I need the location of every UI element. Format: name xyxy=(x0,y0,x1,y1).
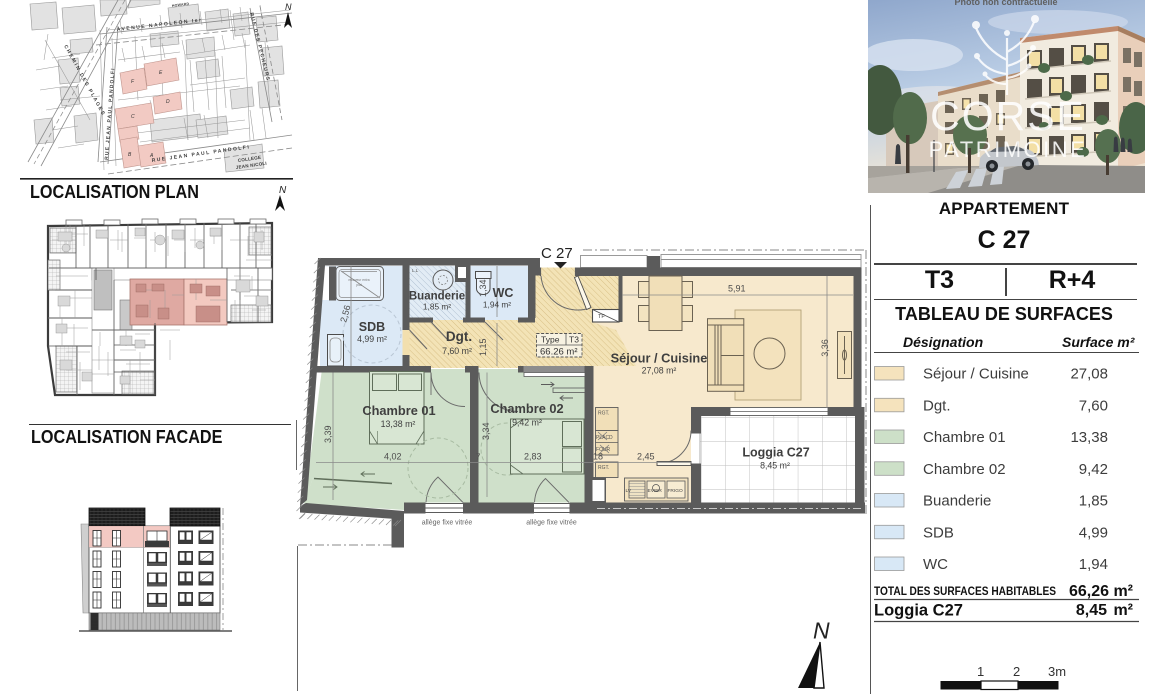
svg-text:TOTAL DES SURFACES HABITABLES: TOTAL DES SURFACES HABITABLES xyxy=(874,586,1056,598)
svg-text:SDB: SDB xyxy=(923,524,954,541)
svg-text:9,42: 9,42 xyxy=(1079,461,1108,478)
svg-text:66.26 m²: 66.26 m² xyxy=(540,347,578,358)
svg-text:4,02: 4,02 xyxy=(384,452,402,462)
svg-text:66,26 m²: 66,26 m² xyxy=(1069,583,1133,600)
svg-text:Dgt.: Dgt. xyxy=(923,397,951,414)
svg-text:WC: WC xyxy=(493,286,514,300)
svg-text:18: 18 xyxy=(593,452,603,462)
svg-text:3,39: 3,39 xyxy=(323,425,333,443)
svg-text:1,94 m²: 1,94 m² xyxy=(483,300,511,310)
svg-text:1,34: 1,34 xyxy=(478,279,488,297)
svg-text:13,38: 13,38 xyxy=(1070,429,1108,446)
svg-text:8,45 m²: 8,45 m² xyxy=(1076,602,1133,619)
svg-text:CORSE: CORSE xyxy=(930,93,1086,139)
svg-text:RGT.: RGT. xyxy=(598,465,609,471)
svg-text:receveur extra: receveur extra xyxy=(348,278,369,282)
svg-text:WC: WC xyxy=(923,556,948,573)
svg-text:Type: Type xyxy=(541,335,560,345)
svg-text:L.L: L.L xyxy=(412,268,419,273)
svg-text:SDB: SDB xyxy=(359,320,385,334)
svg-text:Photo non contractuelle: Photo non contractuelle xyxy=(954,0,1057,7)
svg-text:N: N xyxy=(285,2,292,12)
svg-text:9,42 m²: 9,42 m² xyxy=(512,418,542,428)
svg-text:N: N xyxy=(279,185,287,196)
svg-text:2,45: 2,45 xyxy=(637,452,655,462)
svg-text:3,34: 3,34 xyxy=(481,422,491,440)
svg-text:27,08: 27,08 xyxy=(1070,366,1108,383)
svg-text:1,15: 1,15 xyxy=(478,338,488,356)
svg-text:Chambre 01: Chambre 01 xyxy=(362,403,435,418)
svg-text:D: D xyxy=(166,99,170,105)
svg-text:7: 7 xyxy=(476,453,481,462)
svg-text:13,38 m²: 13,38 m² xyxy=(381,419,416,429)
svg-text:RGT.: RGT. xyxy=(598,411,609,417)
svg-text:Séjour / Cuisine: Séjour / Cuisine xyxy=(923,366,1029,383)
svg-text:Séjour / Cuisine: Séjour / Cuisine xyxy=(611,351,708,366)
svg-text:Dgt.: Dgt. xyxy=(446,329,472,344)
svg-text:PATRIMOINE: PATRIMOINE xyxy=(929,137,1088,162)
svg-text:LV: LV xyxy=(626,488,632,494)
svg-text:1,85 m²: 1,85 m² xyxy=(423,302,451,312)
svg-text:allège fixe vitrée: allège fixe vitrée xyxy=(422,520,473,527)
svg-text:3m: 3m xyxy=(1048,664,1066,679)
svg-text:Loggia C27: Loggia C27 xyxy=(742,446,809,460)
svg-text:3,36: 3,36 xyxy=(820,339,830,357)
svg-text:Buanderie: Buanderie xyxy=(923,493,991,510)
svg-text:1: 1 xyxy=(977,664,984,679)
svg-text:EVIER: EVIER xyxy=(648,488,663,494)
svg-text:8,45 m²: 8,45 m² xyxy=(760,461,790,471)
svg-text:4,99 m²: 4,99 m² xyxy=(357,334,387,344)
svg-text:plat: plat xyxy=(356,283,361,287)
svg-text:1,85: 1,85 xyxy=(1079,493,1108,510)
svg-text:C: C xyxy=(131,114,135,120)
svg-text:5,91: 5,91 xyxy=(728,284,746,294)
svg-text:C 27: C 27 xyxy=(541,245,573,262)
svg-text:2: 2 xyxy=(1013,664,1020,679)
svg-text:Chambre 02: Chambre 02 xyxy=(923,461,1006,478)
svg-text:1,94: 1,94 xyxy=(1079,556,1108,573)
svg-text:FRIGO: FRIGO xyxy=(668,488,683,494)
svg-text:N: N xyxy=(813,618,830,644)
svg-text:4,99: 4,99 xyxy=(1079,524,1108,541)
svg-text:PLACD: PLACD xyxy=(596,435,613,441)
svg-text:Chambre 01: Chambre 01 xyxy=(923,429,1006,446)
svg-text:T3: T3 xyxy=(569,335,579,345)
svg-text:TF: TF xyxy=(598,314,605,320)
svg-text:allège fixe vitrée: allège fixe vitrée xyxy=(526,520,577,527)
svg-text:7,60 m²: 7,60 m² xyxy=(442,346,472,356)
svg-text:Chambre 02: Chambre 02 xyxy=(490,401,563,416)
svg-text:7,60: 7,60 xyxy=(1079,397,1108,414)
svg-text:Loggia C27: Loggia C27 xyxy=(874,602,963,620)
svg-text:2,83: 2,83 xyxy=(524,452,542,462)
svg-text:27,08 m²: 27,08 m² xyxy=(642,366,677,376)
